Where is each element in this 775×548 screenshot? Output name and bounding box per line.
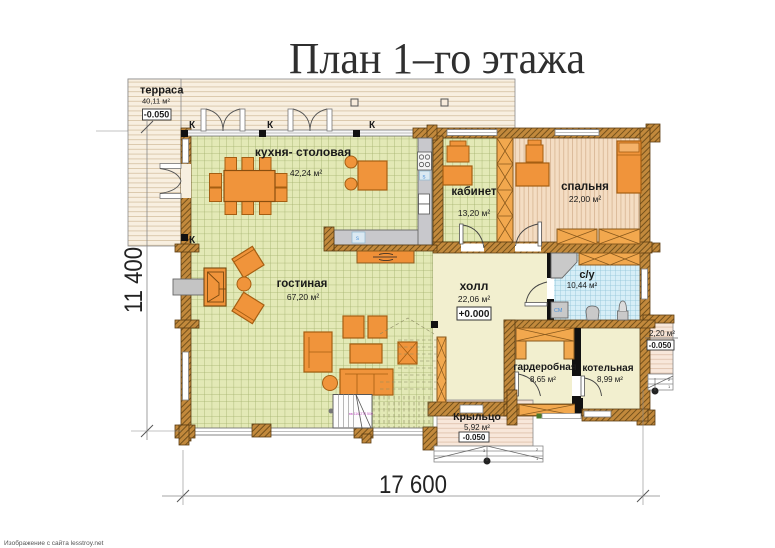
svg-text:22,06 м²: 22,06 м² xyxy=(458,294,490,304)
svg-text:17 600: 17 600 xyxy=(379,471,447,499)
svg-text:К: К xyxy=(189,120,196,131)
svg-text:К: К xyxy=(369,120,376,131)
svg-text:Крыльцо: Крыльцо xyxy=(453,411,501,423)
svg-text:-0.050: -0.050 xyxy=(649,341,672,350)
svg-text:s: s xyxy=(423,175,426,181)
svg-text:11 400: 11 400 xyxy=(120,247,148,313)
svg-text:s: s xyxy=(356,236,359,242)
svg-text:К: К xyxy=(189,235,196,246)
svg-text:СМ: СМ xyxy=(554,308,563,314)
svg-text:Изображение с сайта lesstroy.n: Изображение с сайта lesstroy.net xyxy=(4,539,104,547)
svg-text:8,99 м²: 8,99 м² xyxy=(597,375,623,384)
svg-text:42,24 м²: 42,24 м² xyxy=(290,168,322,178)
svg-text:13,20 м²: 13,20 м² xyxy=(458,208,490,218)
svg-text:спальня: спальня xyxy=(561,181,609,193)
svg-text:-0.050: -0.050 xyxy=(144,110,170,120)
svg-text:2,20 м²: 2,20 м² xyxy=(649,329,675,338)
svg-text:К: К xyxy=(267,120,274,131)
svg-text:гостиная: гостиная xyxy=(277,278,328,290)
svg-text:кабинет: кабинет xyxy=(451,186,497,198)
svg-text:кухня- столовая: кухня- столовая xyxy=(255,145,351,159)
svg-text:5,92 м²: 5,92 м² xyxy=(464,423,490,432)
svg-text:10,44 м²: 10,44 м² xyxy=(567,281,598,290)
svg-text:терраса: терраса xyxy=(140,85,184,97)
svg-text:котельная: котельная xyxy=(582,363,633,374)
svg-text:с/у: с/у xyxy=(579,269,595,281)
svg-text:40,11 м²: 40,11 м² xyxy=(142,97,170,106)
svg-text:8,65 м²: 8,65 м² xyxy=(530,375,556,384)
svg-text:холл: холл xyxy=(460,279,489,293)
svg-text:67,20 м²: 67,20 м² xyxy=(287,292,319,302)
svg-text:+0.000: +0.000 xyxy=(459,309,490,320)
svg-text:План 1–го этажа: План 1–го этажа xyxy=(289,34,585,83)
svg-text:22,00 м²: 22,00 м² xyxy=(569,194,601,204)
svg-text:-0.050: -0.050 xyxy=(463,433,486,442)
svg-text:гардеробная: гардеробная xyxy=(513,361,576,373)
svg-text:вв 116 273 500: вв 116 273 500 xyxy=(349,412,373,416)
